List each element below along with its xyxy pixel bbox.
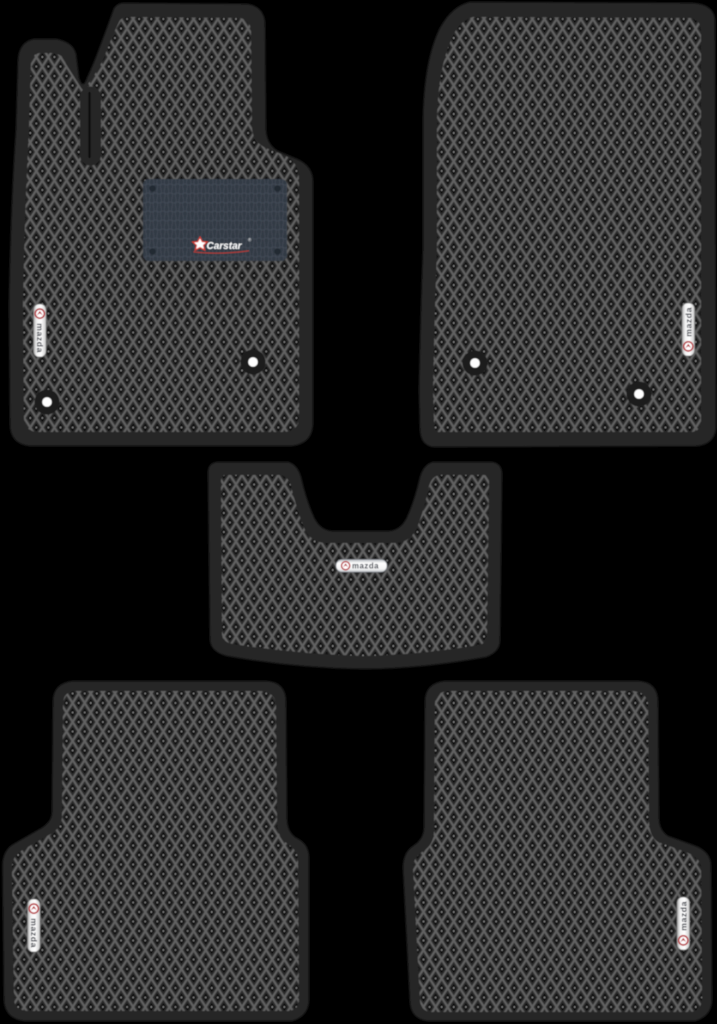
svg-text:mazda: mazda	[352, 562, 379, 571]
svg-text:mazda: mazda	[35, 323, 45, 353]
svg-text:mazda: mazda	[29, 918, 39, 948]
svg-text:mazda: mazda	[678, 901, 688, 931]
svg-text:Carstar: Carstar	[207, 241, 243, 252]
svg-text:mazda: mazda	[683, 307, 693, 337]
